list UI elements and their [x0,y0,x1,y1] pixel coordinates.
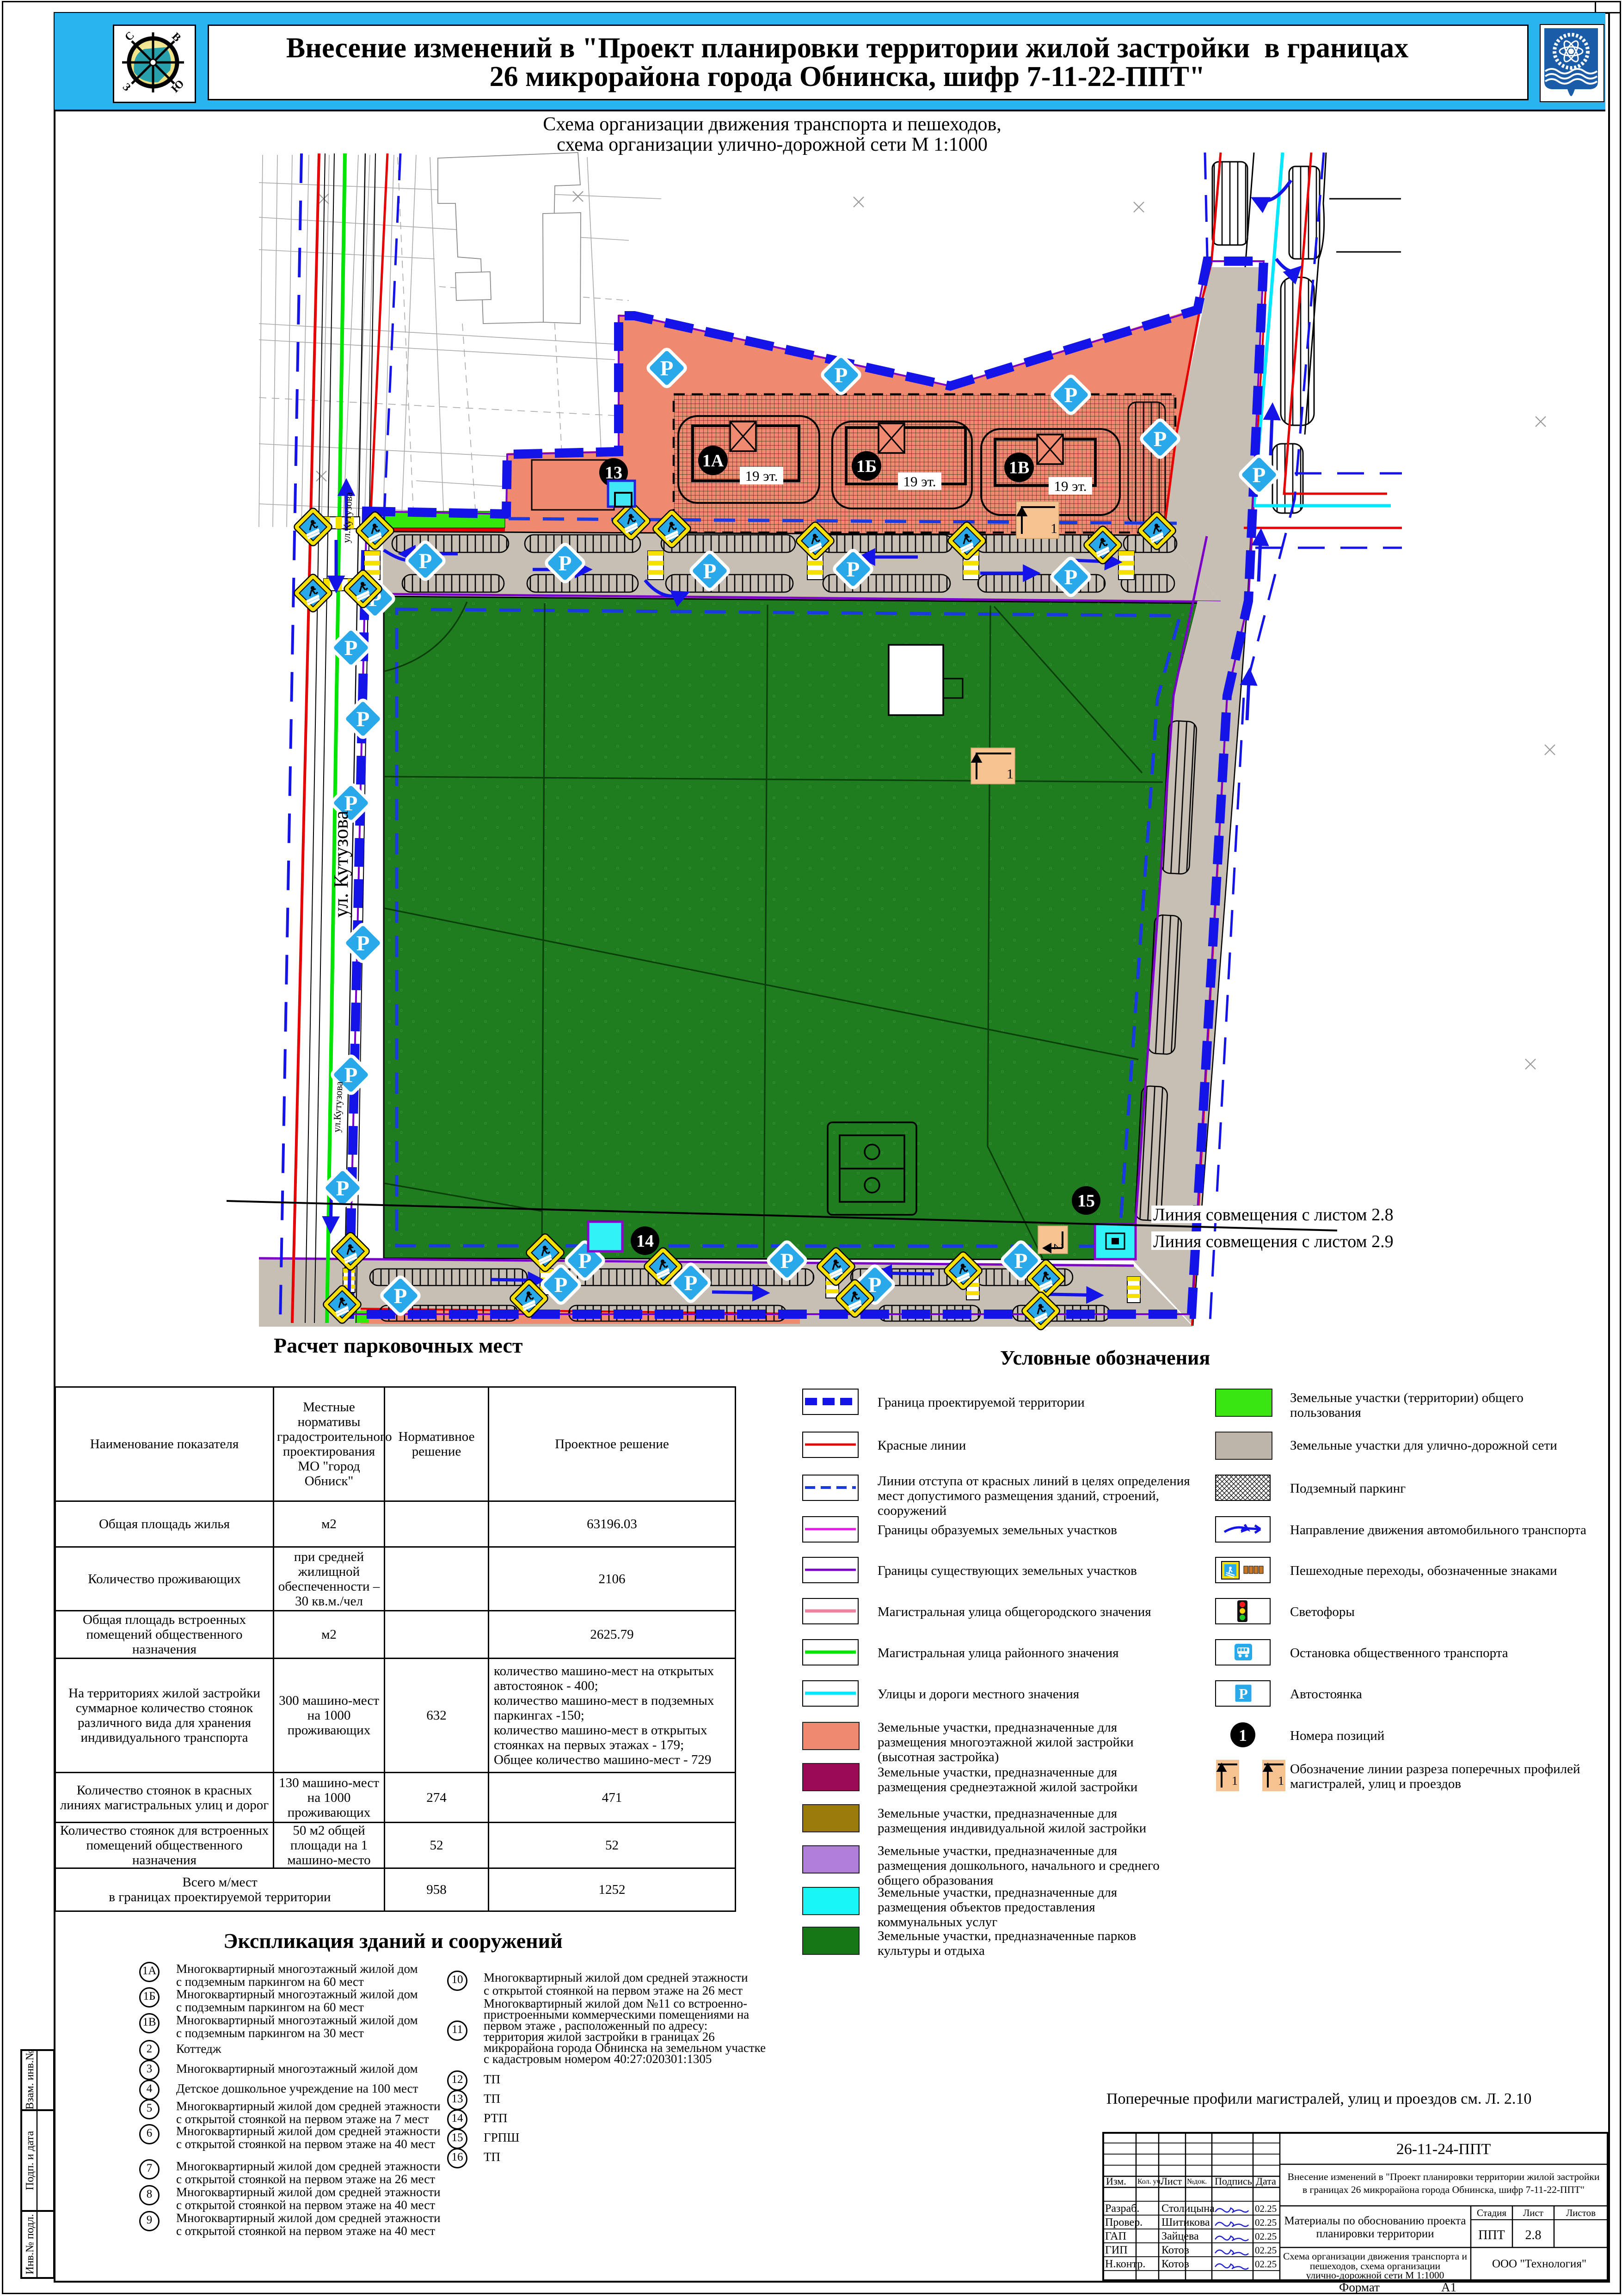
svg-text:Котов: Котов [1161,2258,1189,2270]
svg-text:P: P [344,636,358,660]
svg-text:02.25: 02.25 [1255,2217,1277,2228]
svg-text:Н.контр.: Н.контр. [1105,2258,1145,2270]
svg-text:1: 1 [1278,1774,1284,1788]
svg-text:Лист: Лист [1523,2207,1543,2218]
svg-text:P: P [660,356,674,380]
svg-text:P: P [559,551,572,576]
svg-text:14: 14 [636,1231,654,1251]
svg-text:P: P [356,707,370,731]
svg-text:02.25: 02.25 [1255,2259,1277,2270]
svg-text:Внесение изменений в "Проект п: Внесение изменений в "Проект планировки … [1288,2171,1600,2182]
svg-text:1: 1 [1007,766,1014,782]
svg-text:1В: 1В [1009,458,1029,478]
svg-text:В: В [169,31,183,44]
svg-text:P: P [344,1063,358,1087]
svg-text:ул. Кутузова: ул. Кутузова [330,810,352,918]
svg-text:P: P [1064,565,1078,589]
svg-text:P: P [1064,383,1078,407]
svg-text:З: З [120,81,133,94]
svg-text:P: P [703,559,717,583]
svg-text:P: P [1154,427,1167,451]
svg-text:ООО "Технология": ООО "Технология" [1492,2258,1586,2270]
svg-text:№док.: №док. [1187,2178,1207,2186]
svg-text:ППТ: ППТ [1478,2228,1505,2242]
svg-text:2.8: 2.8 [1525,2228,1542,2242]
svg-text:02.25: 02.25 [1255,2245,1277,2256]
svg-text:P: P [419,549,432,573]
svg-text:Дата: Дата [1256,2175,1276,2187]
svg-text:P: P [1253,463,1266,487]
svg-text:Лист: Лист [1161,2175,1182,2187]
svg-text:02.25: 02.25 [1255,2203,1277,2214]
svg-text:P: P [578,1249,592,1273]
svg-text:Материалы по обоснованию проек: Материалы по обоснованию проекта [1284,2215,1466,2227]
svg-text:P: P [1014,1249,1028,1273]
svg-text:2: 2 [1051,1243,1065,1250]
svg-text:ГИП: ГИП [1105,2244,1128,2256]
svg-text:P: P [554,1273,568,1297]
svg-text:19 эт.: 19 эт. [745,468,778,484]
svg-text:P: P [1239,1685,1248,1702]
svg-text:Взам. инв.№: Взам. инв.№ [24,2050,36,2109]
svg-text:1А: 1А [702,451,724,471]
svg-text:Кол. уч.: Кол. уч. [1137,2178,1162,2186]
svg-text:ул.Кутузова: ул.Кутузова [340,492,355,544]
svg-text:Котов: Котов [1161,2244,1189,2256]
svg-text:P: P [684,1271,698,1295]
svg-text:планировки территории: планировки территории [1316,2228,1434,2240]
svg-text:Стадия: Стадия [1477,2207,1506,2218]
svg-text:Шитикова: Шитикова [1161,2216,1210,2229]
svg-text:Подп. и дата: Подп. и дата [24,2131,36,2191]
svg-text:Столицына: Столицына [1161,2203,1215,2215]
svg-text:1: 1 [1051,521,1057,536]
svg-text:P: P [780,1249,794,1273]
svg-text:1: 1 [1232,1774,1238,1788]
svg-text:15: 15 [1077,1191,1095,1211]
svg-text:1: 1 [1239,1726,1247,1745]
svg-text:С: С [123,29,137,43]
svg-text:Изм.: Изм. [1106,2175,1126,2187]
svg-text:ул.Кутузова: ул.Кутузова [331,1081,345,1133]
svg-text:Инв.№ подл.: Инв.№ подл. [24,2214,36,2275]
svg-text:Листов: Листов [1566,2207,1596,2218]
svg-text:02.25: 02.25 [1255,2231,1277,2242]
svg-text:P: P [394,1284,407,1308]
svg-text:Линия совмещения с листом 2.8: Линия совмещения с листом 2.8 [1153,1205,1394,1225]
svg-text:P: P [356,931,370,955]
svg-text:1Б: 1Б [856,457,877,476]
svg-text:P: P [847,557,860,582]
svg-text:19 эт.: 19 эт. [1054,478,1087,494]
svg-text:улично-дорожной сети М 1:1000: улично-дорожной сети М 1:1000 [1306,2270,1444,2281]
svg-text:Подпись: Подпись [1215,2175,1252,2187]
svg-text:в границах 26 микрорайона горо: в границах 26 микрорайона города Обнинск… [1303,2184,1585,2195]
svg-text:Провер.: Провер. [1105,2216,1143,2229]
svg-text:26-11-24-ППТ: 26-11-24-ППТ [1396,2141,1491,2158]
svg-text:Линия совмещения с листом 2.9: Линия совмещения с листом 2.9 [1153,1232,1394,1251]
svg-text:19 эт.: 19 эт. [903,473,936,490]
svg-text:Зайцева: Зайцева [1161,2230,1199,2242]
svg-text:P: P [336,1176,350,1200]
svg-text:P: P [835,363,848,387]
svg-text:Разраб.: Разраб. [1105,2203,1139,2215]
svg-text:ГАП: ГАП [1105,2230,1126,2242]
